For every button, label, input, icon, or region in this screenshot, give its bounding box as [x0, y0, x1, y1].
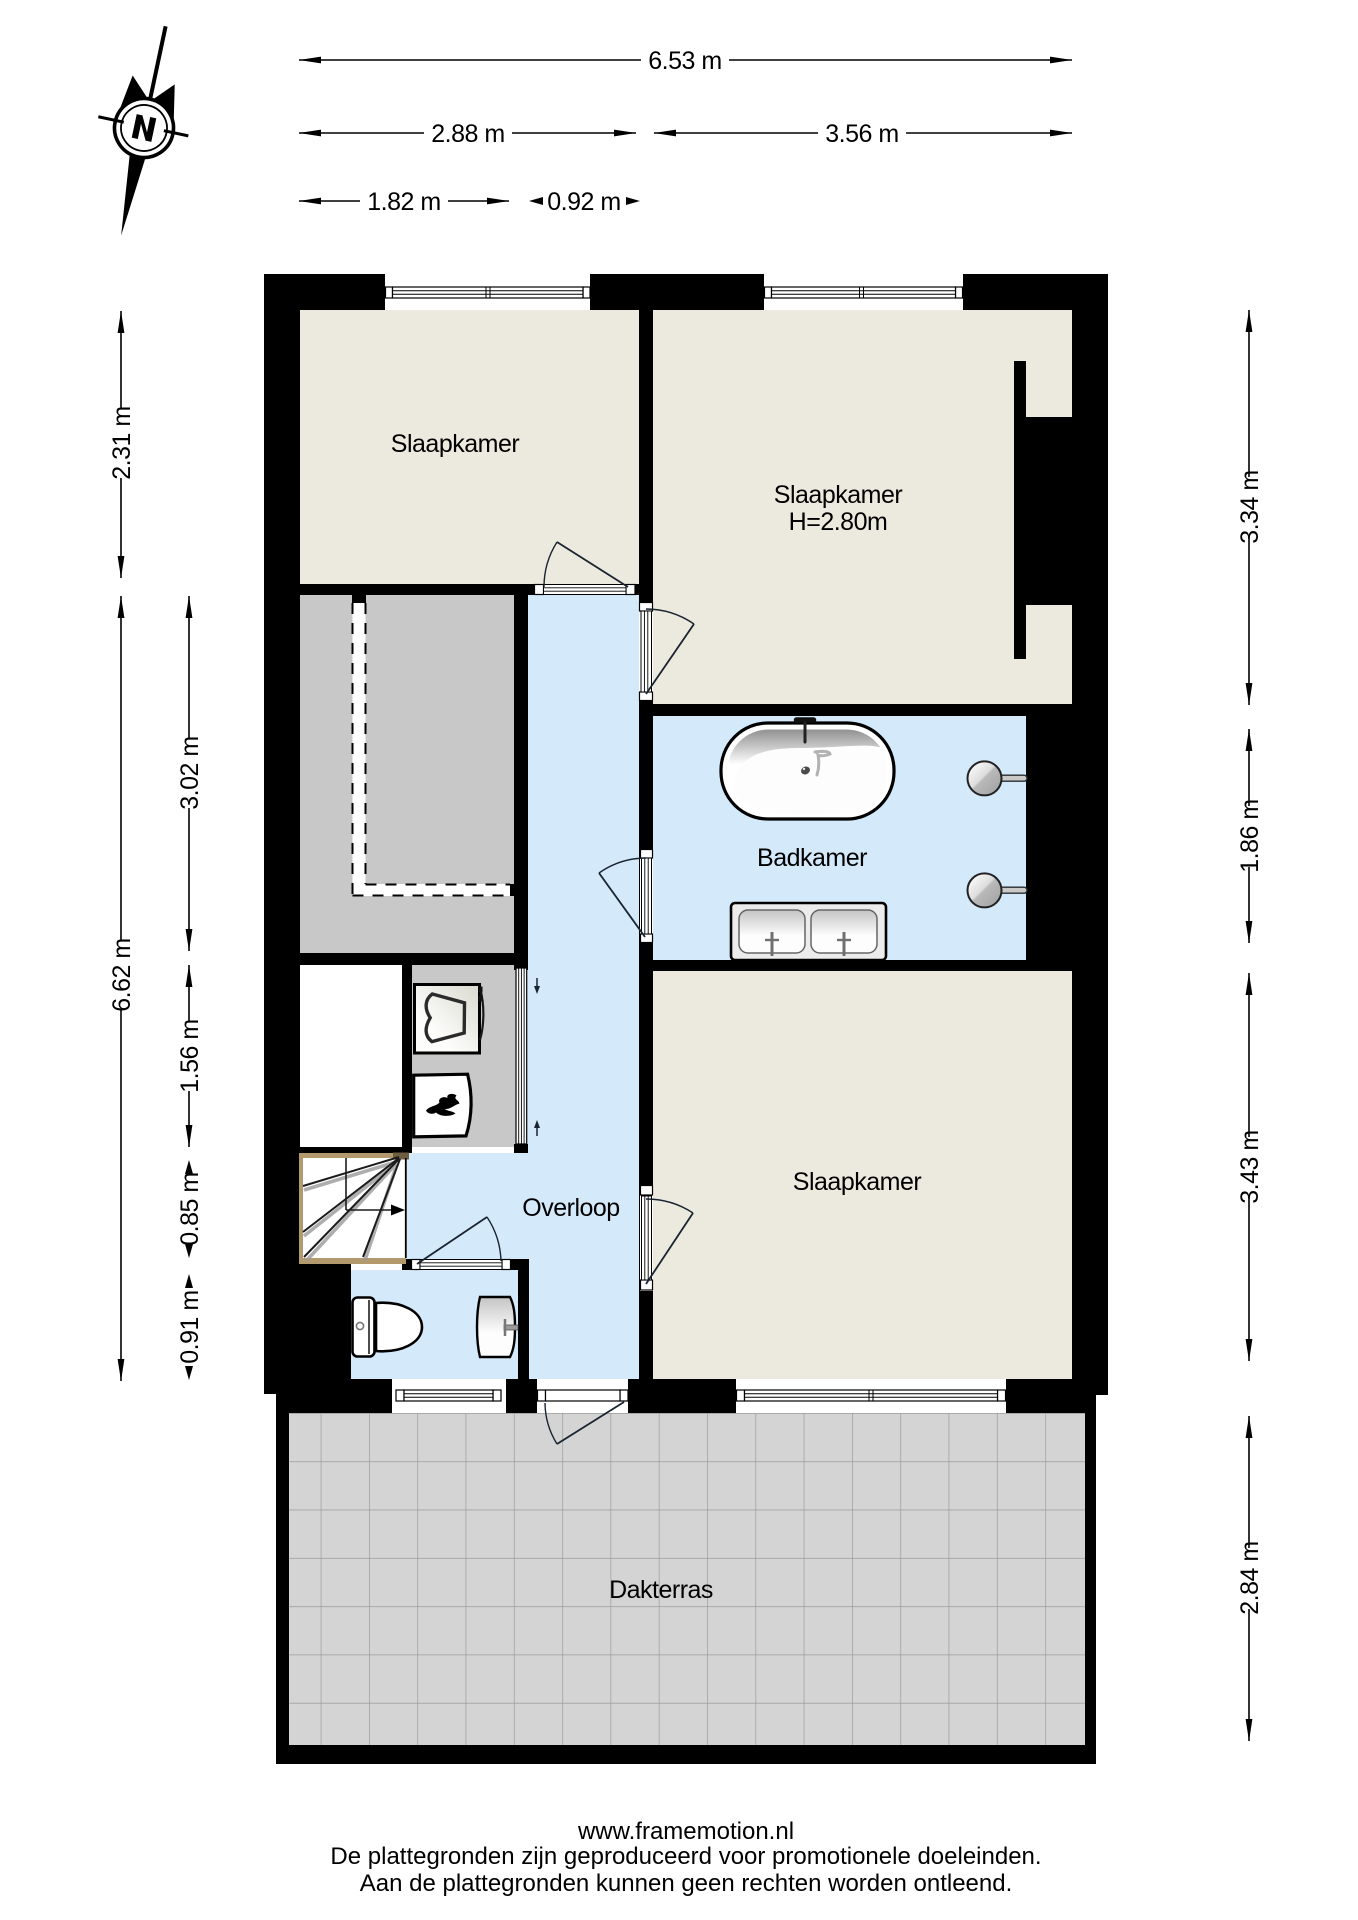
- svg-text:Dakterras: Dakterras: [609, 1576, 713, 1604]
- svg-text:De plattegronden zijn geproduc: De plattegronden zijn geproduceerd voor …: [330, 1843, 1041, 1870]
- svg-text:1.82 m: 1.82 m: [367, 188, 440, 216]
- svg-text:Overloop: Overloop: [522, 1194, 619, 1222]
- svg-text:Slaapkamer: Slaapkamer: [774, 481, 903, 509]
- svg-text:6.62 m: 6.62 m: [108, 938, 136, 1011]
- svg-text:0.92 m: 0.92 m: [547, 188, 620, 216]
- svg-text:Aan de plattegronden kunnen ge: Aan de plattegronden kunnen geen rechten…: [360, 1870, 1013, 1897]
- svg-text:Slaapkamer: Slaapkamer: [391, 430, 520, 458]
- svg-text:0.91 m: 0.91 m: [176, 1290, 204, 1363]
- svg-text:1.86 m: 1.86 m: [1236, 799, 1264, 872]
- svg-text:1.56 m: 1.56 m: [176, 1019, 204, 1092]
- svg-text:3.34 m: 3.34 m: [1236, 470, 1264, 543]
- svg-text:3.02 m: 3.02 m: [176, 736, 204, 809]
- svg-text:0.85 m: 0.85 m: [176, 1172, 204, 1245]
- svg-text:H=2.80m: H=2.80m: [789, 508, 888, 536]
- svg-text:2.88 m: 2.88 m: [431, 120, 504, 148]
- svg-text:2.84 m: 2.84 m: [1236, 1541, 1264, 1614]
- svg-text:6.53 m: 6.53 m: [648, 47, 721, 75]
- svg-text:Slaapkamer: Slaapkamer: [793, 1168, 922, 1196]
- svg-text:Badkamer: Badkamer: [757, 844, 867, 872]
- svg-text:2.31 m: 2.31 m: [108, 406, 136, 479]
- svg-text:3.56 m: 3.56 m: [825, 120, 898, 148]
- svg-text:3.43 m: 3.43 m: [1236, 1130, 1264, 1203]
- svg-text:www.framemotion.nl: www.framemotion.nl: [577, 1818, 794, 1845]
